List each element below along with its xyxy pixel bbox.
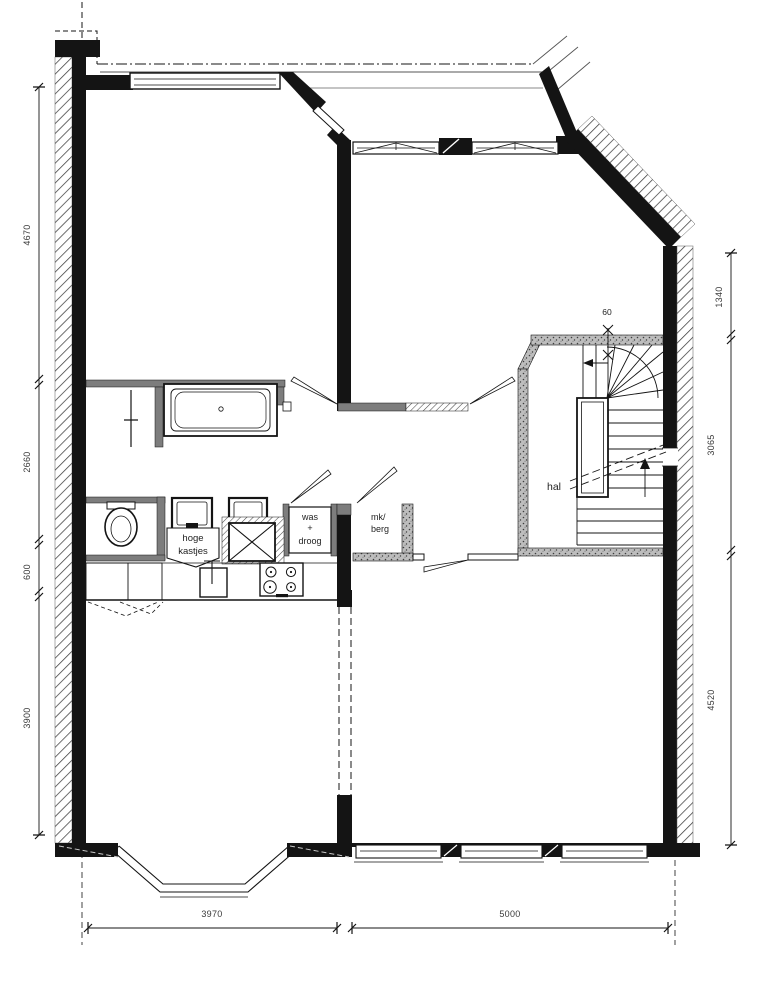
removed-wall-opening <box>339 607 351 795</box>
corridor-wall-hatched <box>406 403 468 411</box>
staircase <box>570 325 666 545</box>
right-wall <box>663 246 677 857</box>
kitchen <box>86 561 337 616</box>
left-wall-hatch <box>55 57 72 843</box>
wc-partition-lower <box>157 497 165 560</box>
dim-left-3900: 3900 <box>22 707 32 728</box>
cabinet-door-swings <box>88 602 163 616</box>
was-label-3: droog <box>298 536 321 546</box>
stove-handle <box>276 594 288 597</box>
bottom-right-corner <box>647 843 700 857</box>
left-wall <box>72 40 86 843</box>
stair-count-label: 60 <box>602 307 612 317</box>
diagonal-exterior-wall <box>566 129 681 249</box>
hal-west-wall <box>518 369 528 553</box>
lower-treads <box>577 497 663 545</box>
corridor-door-right-leaf <box>470 377 515 404</box>
right-wall-hatch <box>677 246 693 845</box>
top-left-corner <box>55 40 100 57</box>
hal-label: hal <box>547 481 561 493</box>
bottom-wall-stub-mid <box>287 843 352 857</box>
floorplan-sheet: hal was + droog mk/ berg hoge kastjes 60… <box>0 0 767 1000</box>
winder-treads <box>607 345 663 398</box>
dim-right-4520: 4520 <box>706 689 716 710</box>
hal-chamfer-wall <box>518 342 541 369</box>
wc-door-leaf <box>124 390 138 447</box>
stove <box>260 563 303 597</box>
bottom-window-1 <box>354 845 443 862</box>
diagonal-wall-hatch <box>578 116 695 237</box>
dim-right-1340: 1340 <box>714 286 724 307</box>
clerestory-window-left <box>353 142 439 154</box>
bathtub <box>164 384 277 436</box>
dim-left-4670: 4670 <box>22 224 32 245</box>
top-window <box>130 73 280 89</box>
walking-line-arc <box>607 347 658 398</box>
laundry-closet-door-leaf <box>291 470 331 503</box>
floorplan-drawing: hal was + droog mk/ berg hoge kastjes 60… <box>0 0 767 1000</box>
corridor-wall-solid <box>338 403 406 411</box>
bay-window <box>114 846 294 897</box>
hal-north-wall <box>531 335 663 345</box>
bottom-window-2 <box>459 845 544 862</box>
entry-door-gap <box>662 448 678 466</box>
room-door-leaf <box>424 560 468 572</box>
kitchen-cabinets <box>86 563 162 600</box>
room-wall-segment-a <box>413 554 424 560</box>
opening-stub-bottom <box>337 795 352 843</box>
mk-label-1: mk/ <box>371 512 386 522</box>
kitchen-sink <box>200 561 227 597</box>
closet-head-wall <box>337 504 351 515</box>
clerestory-window-right <box>472 142 558 154</box>
straight-treads <box>608 410 663 488</box>
kast-label-2: kastjes <box>178 546 208 557</box>
wc-partition-upper <box>155 387 163 447</box>
windows <box>114 73 649 897</box>
bottom-dim-guides <box>82 852 675 945</box>
toilet <box>105 502 137 546</box>
dim-bottom-5000: 5000 <box>499 909 520 919</box>
dimension-chain-right: 1340 3065 4520 <box>706 249 737 849</box>
dim-right-3065: 3065 <box>706 434 716 455</box>
up-arrow <box>640 458 650 469</box>
mk-bottom-wall <box>353 553 413 561</box>
mk-right-wall <box>402 504 413 556</box>
mk-label-2: berg <box>371 524 389 534</box>
hal-south-wall <box>518 548 663 556</box>
opening-stub-top <box>337 590 352 607</box>
mk-closet-door-leaf <box>357 467 397 503</box>
top-wall-segment <box>86 75 133 90</box>
dimension-chain-bottom: 3970 5000 <box>82 852 675 945</box>
dim-left-2660: 2660 <box>22 451 32 472</box>
room-wall-segment-b <box>468 554 518 560</box>
dim-left-600: 600 <box>22 564 32 580</box>
stair-direction-arrow <box>583 359 593 367</box>
main-interior-bearing-wall <box>337 140 351 411</box>
dimension-chain-left: 4670 2660 600 3900 <box>22 83 45 839</box>
kast-label-1: hoge <box>182 533 203 544</box>
diagonal-door-leaf <box>313 106 344 135</box>
dim-bottom-3970: 3970 <box>201 909 222 919</box>
laundry-jamb-right <box>331 504 337 556</box>
corridor-jamb <box>283 402 291 411</box>
was-label-1: was <box>301 512 319 522</box>
wc-bottom-wall <box>86 555 165 561</box>
was-label-2: + <box>307 523 312 533</box>
bottom-window-3 <box>560 845 649 862</box>
corridor-door-left-leaf <box>291 377 337 404</box>
washing-machine <box>229 523 275 561</box>
